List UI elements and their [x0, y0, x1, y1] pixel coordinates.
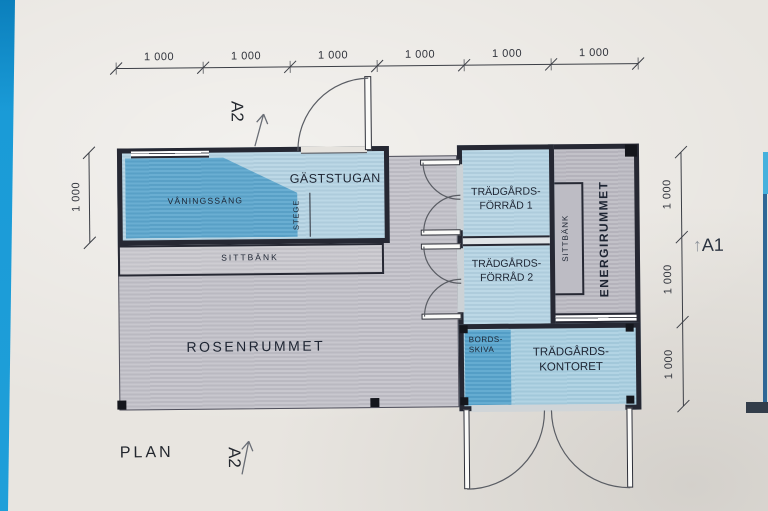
corner-post	[460, 397, 468, 405]
adjacent-drawing-dark-bar	[746, 402, 768, 413]
forrad1-label-line1: TRÄDGÅRDS-	[460, 184, 551, 199]
section-marker-a1: ↑A1	[693, 235, 724, 256]
door-leaf	[463, 409, 470, 489]
stege-label: STEGE	[291, 193, 303, 237]
forrad2-label: TRÄDGÅRDS- FÖRRÅD 2	[461, 256, 552, 285]
dim-label-top-6: 1 000	[564, 47, 624, 60]
door-leaf	[421, 229, 461, 235]
dim-label-left-1: 1 000	[70, 167, 83, 227]
gaststugan-label: GÄSTSTUGAN	[289, 171, 381, 186]
door-opening-kontoret	[471, 404, 625, 412]
a1-label: A1	[702, 235, 724, 255]
plan-canvas: ROSENRUMMET VÅNINGSSÄNG STEGE GÄSTSTUGAN…	[0, 0, 768, 511]
corner-post	[460, 325, 468, 333]
a1-arrow-up-icon: ↑	[693, 235, 702, 255]
bordsskiva-label-line1: BORDS-	[469, 335, 513, 345]
door-leaf	[420, 159, 460, 165]
section-marker-a2-top: A2	[226, 91, 246, 131]
window-gaststugan	[131, 149, 209, 159]
forrad-divider-shelf	[463, 235, 550, 246]
forrad1-label-line2: FÖRRÅD 1	[460, 198, 551, 213]
forrad1-label: TRÄDGÅRDS- FÖRRÅD 1	[460, 184, 551, 213]
floor-plan-photo: ROSENRUMMET VÅNINGSSÄNG STEGE GÄSTSTUGAN…	[0, 0, 768, 511]
door-leaf	[422, 313, 462, 319]
corner-post	[626, 396, 634, 404]
corner-post	[117, 400, 126, 409]
kontoret-label-line1: TRÄDGÅRDS-	[507, 345, 635, 361]
corner-post	[626, 324, 634, 332]
vaningssang-label: VÅNINGSSÄNG	[145, 195, 265, 206]
energirummet-label: ENERGIRUMMET	[596, 164, 613, 314]
dim-label-top-3: 1 000	[303, 49, 363, 62]
rosenrummet-label: ROSENRUMMET	[136, 337, 376, 355]
dim-label-top-4: 1 000	[390, 48, 450, 61]
corner-post	[370, 398, 379, 407]
door-opening-forrad1	[456, 164, 464, 230]
dim-label-right-2: 1 000	[662, 249, 675, 309]
adjacent-drawing-cyan-edge	[763, 152, 768, 194]
dim-label-top-5: 1 000	[477, 48, 537, 61]
kontoret-label: TRÄDGÅRDS- KONTORET	[507, 345, 635, 376]
door-leaf	[364, 76, 372, 150]
door-leaf	[626, 408, 633, 488]
kontoret-label-line2: KONTORET	[507, 360, 635, 376]
sittbank-band-label: SITTBÄNK	[150, 251, 350, 263]
door-opening-forrad2	[457, 248, 465, 312]
corner-post	[625, 145, 637, 157]
dim-label-top-2: 1 000	[216, 50, 276, 63]
door-opening-gaststugan	[301, 146, 367, 154]
dim-label-top-1: 1 000	[129, 51, 189, 64]
dim-label-right-3: 1 000	[663, 334, 676, 394]
door-leaf	[421, 243, 461, 249]
section-marker-a2-bottom: A2	[224, 437, 244, 477]
sittbank-energirummet-label: SITTBÄNK	[560, 193, 573, 283]
forrad2-label-line1: TRÄDGÅRDS-	[461, 256, 552, 271]
plan-title: PLAN	[120, 444, 174, 463]
forrad2-label-line2: FÖRRÅD 2	[461, 270, 552, 285]
dim-label-right-1: 1 000	[661, 164, 674, 224]
